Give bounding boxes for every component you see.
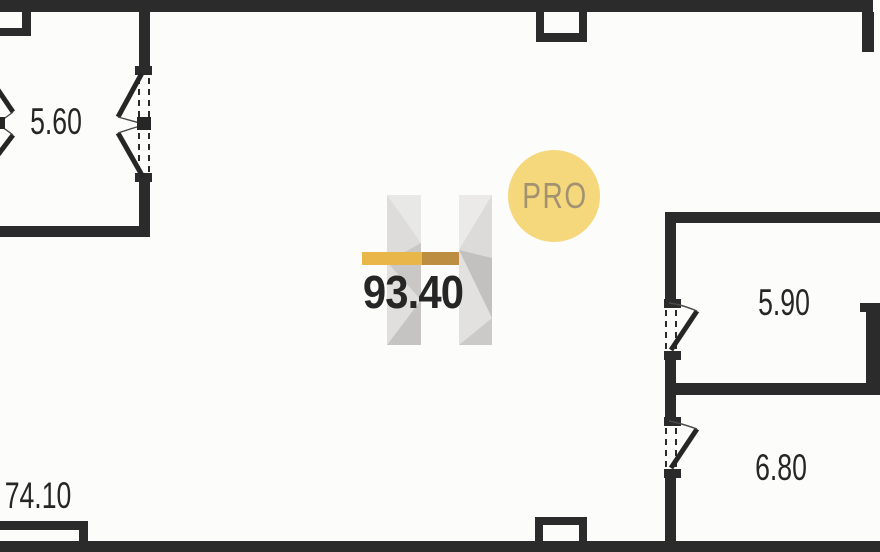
wall-right-column-c	[665, 478, 676, 541]
floor-plan-drawing: PRO	[0, 0, 880, 552]
vent-shaft-hollows	[543, 12, 579, 541]
door-room680	[666, 421, 697, 468]
door-room560-double	[118, 73, 151, 177]
door-left-edge-double	[0, 84, 13, 160]
door590-jamb-bottom	[664, 351, 681, 360]
door590-leaf	[671, 311, 697, 350]
wall-room560-bottom	[0, 226, 150, 237]
wall-room590-edge-cap	[860, 303, 880, 312]
door-room590	[666, 303, 697, 350]
wall-room590-edge-stub	[866, 312, 880, 395]
door-left-leaf-lower	[0, 135, 13, 160]
pro-badge: PRO	[508, 150, 600, 242]
room-label-right-lower: 6.80	[755, 447, 807, 488]
door-left-hinge-block	[0, 117, 5, 129]
wall-top	[0, 0, 873, 12]
door680-leaf	[671, 429, 697, 468]
door-left-leaf-upper	[0, 84, 13, 112]
wall-room590-top	[665, 212, 880, 223]
vent-shaft-bottom-hollow	[543, 525, 579, 541]
pro-badge-label: PRO	[522, 176, 588, 216]
door560-jamb-top	[135, 66, 152, 75]
room-label-right-upper: 5.90	[758, 282, 810, 323]
niche-bottom-left-side	[79, 521, 88, 541]
wall-room590-bottom	[665, 383, 880, 395]
niche-bottom-left-top	[0, 521, 88, 530]
vent-shaft-top-hollow	[544, 12, 579, 33]
door680-jamb-bottom	[664, 469, 681, 478]
room-label-top-left: 5.60	[30, 101, 82, 142]
wall-top-right-stub	[862, 12, 874, 52]
wall-bottom	[0, 541, 880, 552]
floor-plan: PRO	[0, 0, 880, 552]
h-logo-gold-bar	[362, 252, 422, 265]
door560-hinge-block	[137, 117, 151, 130]
niche-top-left-bottom	[0, 28, 31, 36]
wall-room560-right-lower	[139, 182, 150, 226]
wall-right-column-a	[665, 212, 676, 299]
wall-room560-right-upper	[139, 12, 150, 68]
room-label-bottom-left: 74.10	[5, 475, 72, 516]
room-label-main: 93.40	[363, 267, 463, 318]
h-logo-gold-bar-dark	[422, 252, 459, 265]
